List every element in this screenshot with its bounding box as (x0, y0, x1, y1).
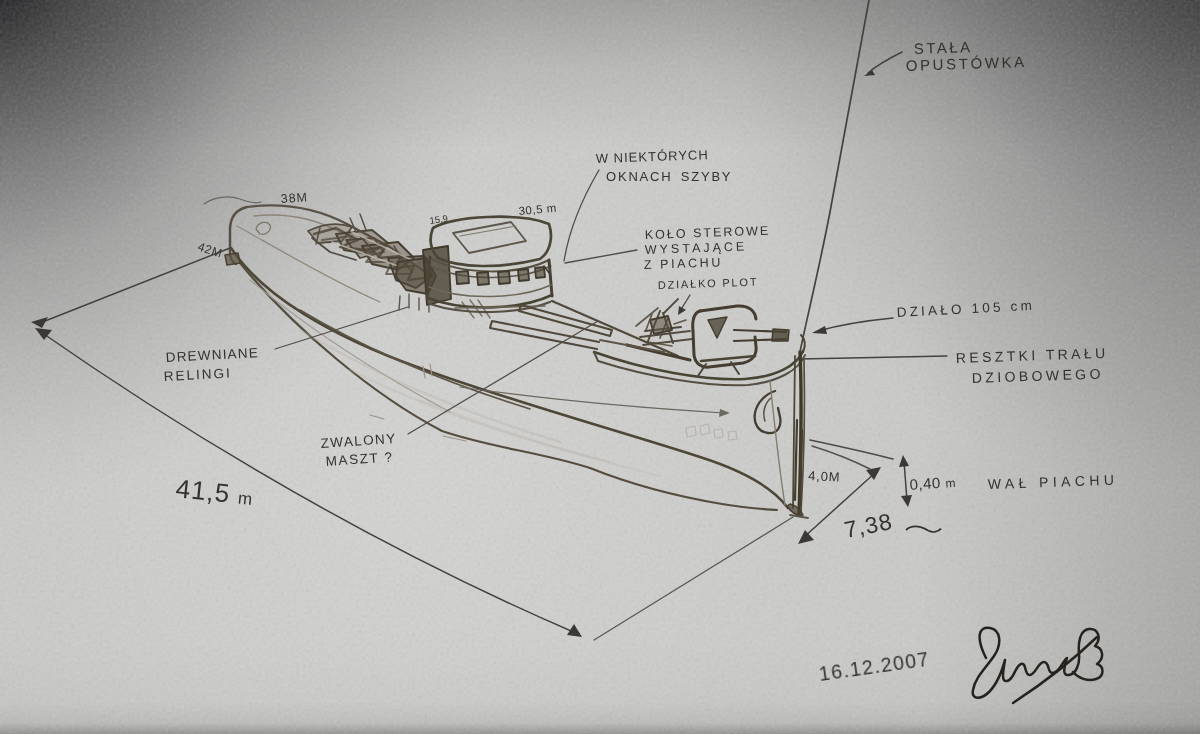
svg-text:38M: 38M (280, 190, 308, 206)
svg-text:4,0M: 4,0M (808, 468, 841, 485)
svg-text:OKNACH SZYBY: OKNACH SZYBY (606, 169, 732, 184)
svg-text:0,40 m: 0,40 m (909, 473, 956, 493)
svg-text:Z PIACHU: Z PIACHU (644, 255, 724, 272)
